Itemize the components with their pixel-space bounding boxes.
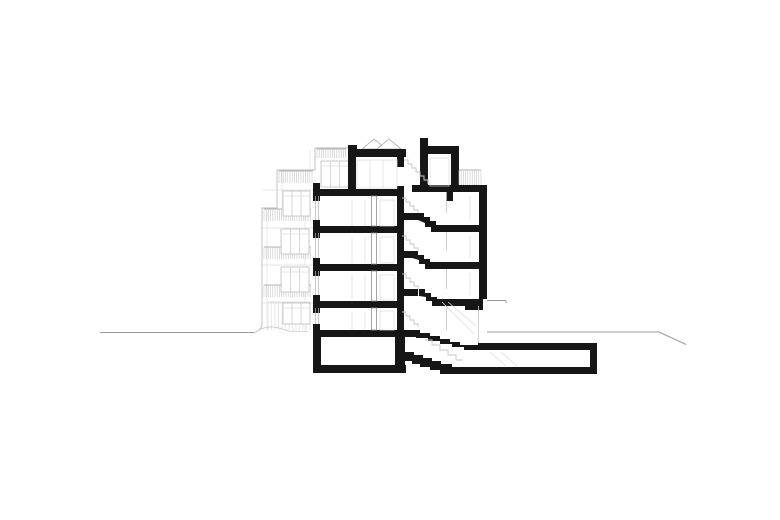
terrain-mound: [254, 327, 308, 333]
section-cut: [313, 138, 597, 374]
roof-skylight: [362, 139, 401, 149]
architectural-section-drawing: [0, 0, 780, 520]
drawing-sheet: [0, 0, 780, 520]
